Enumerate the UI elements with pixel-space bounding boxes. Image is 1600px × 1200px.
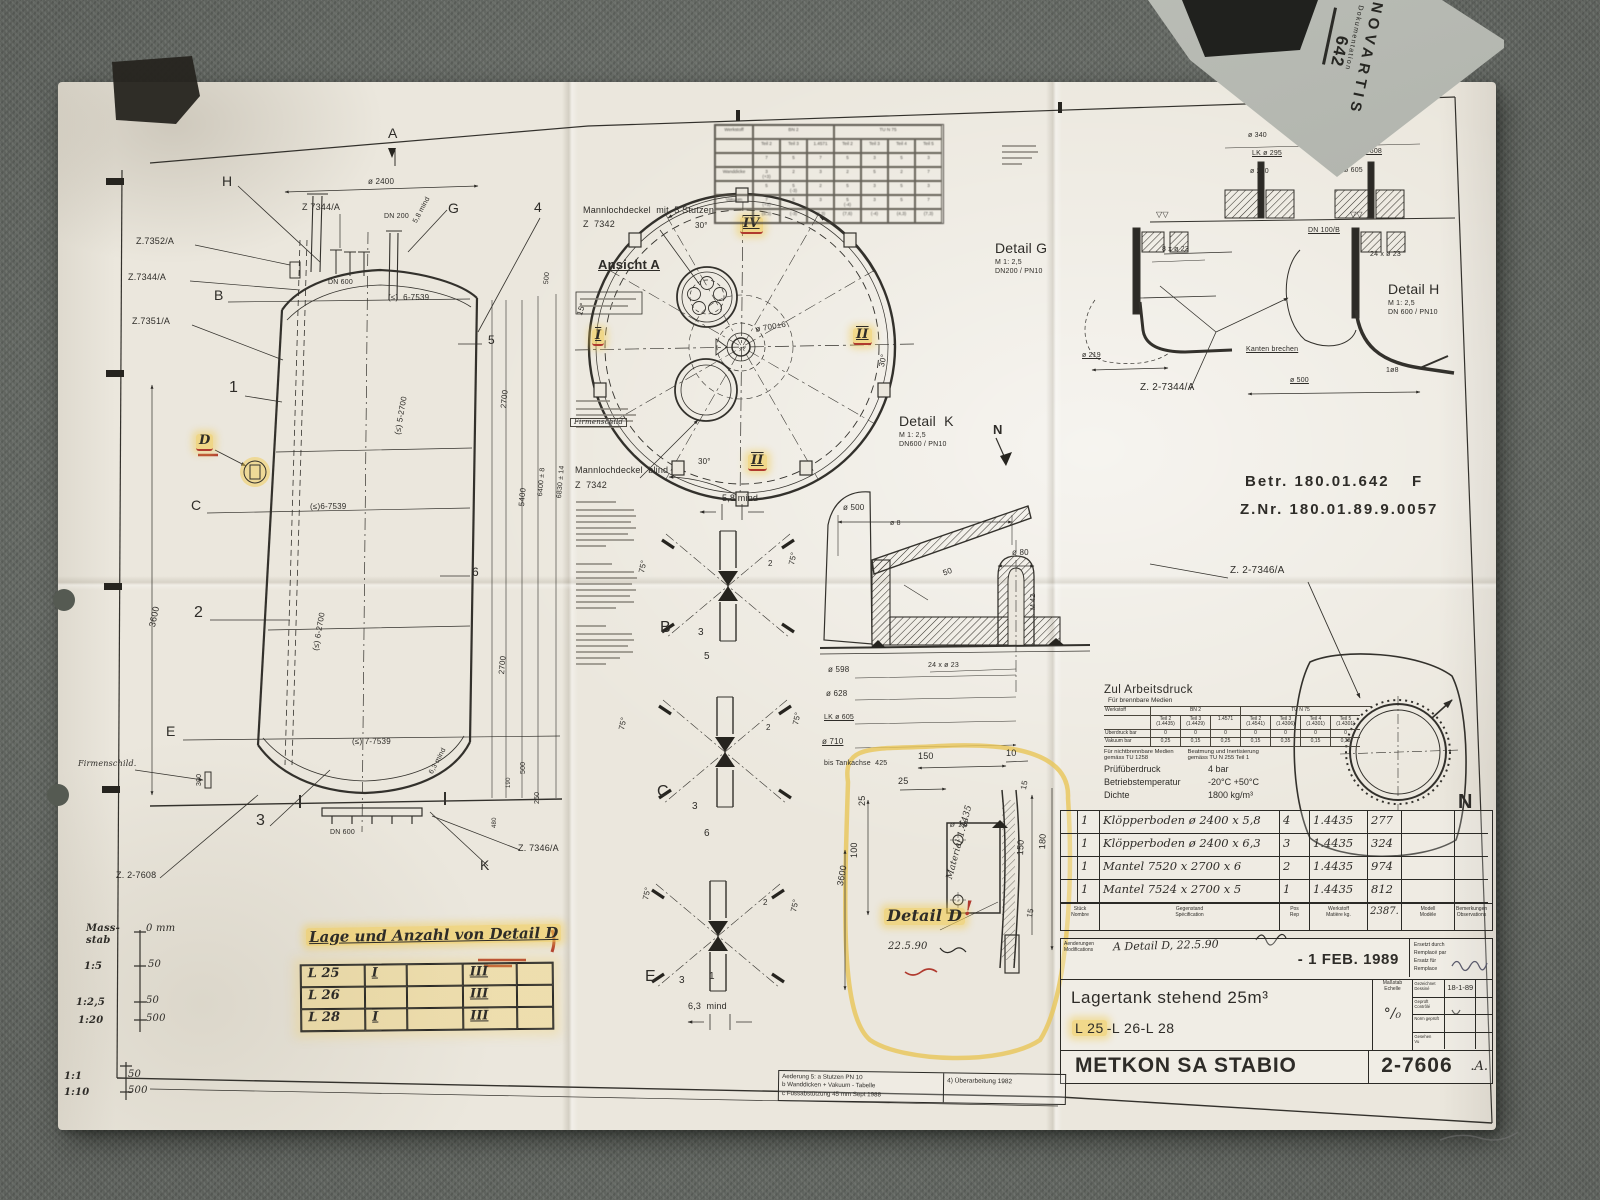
lbl-kanten: Kanten brechen [1246,346,1298,353]
dim-25-d: 25 [898,777,908,786]
dim-80-k: ø 80 [1012,549,1029,557]
item-numbers: L 25-L 26-L 28 [1072,1020,1175,1036]
pos-k: K [480,858,490,873]
parts-row: 1 Klöpperboden ø 2400 x 5,8 4 1.4435 277 [1061,811,1492,834]
lbl-detail-h: Detail H [1388,282,1439,297]
sec-e-3: 3 [679,976,685,986]
sec-b-3: 3 [698,628,704,638]
sec-c: C [657,784,669,801]
scale-cell: MaßstabEchelle °/₀ [1373,980,1414,1050]
dim-710-k: ø 710 [822,738,843,746]
dim-75-e-right: 75° [790,899,801,913]
dim-500-h: ø 500 [1290,377,1309,384]
dim-58mind-mid: 5,8 mind [722,494,758,503]
pos-c: C [191,498,201,513]
lbl-mannloch-blind: Mannlochdeckel blind [575,466,668,475]
pos-e: E [166,724,176,739]
replaced-by-cell: Ersetzt durch Remplacé par Ersatz für Re… [1410,939,1492,979]
drawing-title: Lagertank stehend 25m³ [1071,988,1269,1008]
dim-500-bot: 500 [520,762,527,774]
pos-3: 3 [256,813,265,830]
dim-dn600-top: DN 600 [328,279,353,286]
parts-row: 1 Mantel 7520 x 2700 x 6 2 1.4435 974 [1061,857,1492,880]
ref-z7342-b: Z 7342 [575,481,607,490]
dim-24x23-h: 24 x ø 23 [1370,251,1401,258]
num-ii-right: II [853,328,872,345]
lbl-detail-g: Detail G [995,241,1047,256]
dim-700: ø 700±6 [755,321,787,335]
dim-340: ø 340 [1248,132,1267,139]
dim-75-e-left: 75° [642,887,653,901]
scale-1-20-v: 500 [146,1014,166,1024]
dim-63mind-bottom: 6,3 mind [688,1002,727,1011]
wall-thickness-table: Werkstoff BN 2 TU N 75 Teil 2Teil 31.457… [714,124,944,224]
drawing-title-cell: Lagertank stehend 25m³ L 25-L 26-L 28 [1061,980,1373,1050]
scale-1-5-v: 50 [148,960,161,970]
dim-2-b: 2 [768,560,773,568]
pressure-note-right: Beatmung und Inertisierunggemäss TU N 25… [1188,749,1259,761]
parts-header: StückNombre GegenstandSpécification PosR… [1061,903,1492,930]
scale-value: °/₀ [1373,1006,1413,1022]
num-ii-bottom: II [748,454,767,471]
weld-6-7539-top: (≤) 6-7539 [388,294,429,302]
mark-bang-d: ! [964,898,973,919]
ref-z7351: Z.7351/A [132,317,170,326]
weld-symbol-h: ▽▽ [1350,211,1363,219]
parts-row: 1 Mantel 7524 x 2700 x 5 1 1.4435 812 [1061,880,1492,903]
dim-25v-d: 25 [858,796,867,806]
dim-150v-d: 150 [1016,839,1026,855]
dim-30-top: 30° [695,222,708,230]
betr-line1: Betr. 180.01.642 [1245,474,1390,490]
ref-z2-7608: Z. 2-7608 [116,871,156,880]
dim-250: 250 [534,792,541,804]
dim-250-g: ø 250 [1250,168,1269,175]
dim-190: 190 [506,777,512,788]
dim-dn200: DN 200 [384,213,409,220]
ref-z2-7344: Z. 2-7344/A [1140,383,1194,393]
dim-150-d: 150 [918,752,934,761]
lbl-detail-g-dn: DN200 / PN10 [995,268,1043,275]
pos-1: 1 [229,380,238,397]
modification-entry: A Detail D, 22.5.90 [1113,938,1219,954]
lbl-firmenschild-box: Firmenschild [570,418,627,427]
item-l25-highlight: L 25 [1072,1020,1107,1036]
dim-2700-b: 2700 [498,655,508,674]
pos-2: 2 [194,605,203,622]
dim-6830: 6830 ± 14 [556,465,566,498]
sec-c-3: 3 [692,802,698,812]
lbl-detail-k-dn: DN600 / PN10 [899,441,947,448]
dim-2700-a: 2700 [500,389,510,408]
scale-1-1-v: 50 [128,1070,141,1080]
dim-75-b-right: 75° [788,552,799,566]
dim-m42: M 42 [1030,594,1037,610]
sec-e-1: 1 [709,972,715,982]
pressure-subheading: Für brennbare Medien [1108,697,1372,704]
dim-480: 480 [492,817,498,828]
revision-suffix: .A. [1470,1059,1488,1074]
revision-notes-right: 4) Überarbeitung 1982 [944,1073,1015,1103]
dim-300: 300 [196,774,203,786]
dim-500-k: ø 500 [843,504,864,512]
revision-notes-left: Aederung 5: a Stutzen PN 10 b Wanddicken… [779,1071,944,1102]
dim-15a-d: 15 [1020,780,1030,791]
pos-4: 4 [534,200,542,215]
revision-notes: Aederung 5: a Stutzen PN 10 b Wanddicken… [778,1070,1066,1105]
dim-1o8: 1ø8 [1386,367,1399,374]
pos-h: H [222,174,232,189]
num-i: I [592,329,604,346]
ref-z7352: Z.7352/A [136,237,174,246]
dim-2-c: 2 [766,724,771,732]
dim-6400: 6400 ± 8 [537,467,547,496]
lbl-detail-h-scale: M 1: 2,5 [1388,300,1415,307]
ref-z7344-left: Z.7344/A [128,273,166,282]
company-name: METKON SA STABIO [1075,1054,1297,1078]
weld-6-7539-mid: (≤)6-7539 [310,503,346,511]
dim-219: ø 219 [1082,352,1101,359]
weld-5-2700: (≤) 5-2700 [394,396,409,436]
dim-58mind-top: 5,8 mind [412,196,432,225]
sec-c-6: 6 [704,829,710,839]
pos-n-top: N [993,423,1003,437]
pos-g: G [448,201,459,216]
scale-1-25: 1:2,5 [76,998,105,1008]
lbl-mannloch-5stutzen: Mannlochdeckel mit 5 Stutzen [583,206,714,215]
dim-63mind-left: 6,3 mind [428,747,448,776]
dim-tankachse: bis Tankachse 425 [824,760,887,767]
dim-10-d: 10 [1006,749,1016,758]
betr-line2: Z.Nr. 180.01.89.9.0057 [1240,502,1438,518]
weld-7-7539: (≤) 7-7539 [352,738,391,746]
weld-symbol-g: ▽▽ [1156,211,1169,219]
lbl-detail-k-scale: M 1: 2,5 [899,432,926,439]
dim-5400: 5400 [518,487,528,506]
lbl-date-d: 22.5.90 [888,942,928,952]
dim-2-e: 2 [763,899,768,907]
dim-628: ø 628 [826,690,847,698]
lbl-detail-k: Detail K [899,414,954,429]
dim-598: ø 598 [828,666,849,674]
dim-dn600-bottom: DN 600 [330,829,355,836]
dim-500-top: 500 [543,272,551,285]
dim-24x23-k: 24 x ø 23 [928,662,959,669]
pos-b: B [214,288,224,303]
dim-8-k: ø 8 [890,520,901,527]
lbl-material: Material 1.4435 [946,804,975,880]
working-pressure-block: Zul Arbeitsdruck Für brennbare Medien We… [1104,684,1372,800]
dim-15: 15° [576,302,588,317]
sec-b: B [660,620,671,637]
dim-lk605: LK ø 605 [824,714,854,721]
company-cell: METKON SA STABIO [1061,1051,1369,1083]
dim-3600-d: 3600 [836,864,849,886]
scale-title-2: stab [86,936,111,946]
dim-75-c-right: 75° [792,712,803,726]
drawing-number-cell: 2-7606 .A. [1369,1051,1492,1083]
ref-z7344-top: Z 7344/A [302,203,340,212]
dim-75-c-left: 75° [618,717,629,731]
ref-z7346: Z. 7346/A [518,844,559,853]
pressure-note-left: Für nichtbrennbare Mediengemäss TU 1258 [1104,749,1174,761]
dim-dn100: DN 100/B [1308,227,1340,234]
dim-15b-d: 15 [1026,908,1036,919]
photo-of-technical-drawing: AHZ 7344/AG4ø 2400DN 2005,8 mindZ.7352/A… [0,0,1600,1200]
detail-d-table: L 25IIIIL 26IIIL 28IIII [300,962,555,1033]
dim-2400: ø 2400 [368,178,394,186]
weld-6-2700: (≤) 6-2700 [312,612,327,652]
dim-50-k: 50 [942,567,954,578]
title-block: AenderungenModifications A Detail D, 22.… [1060,938,1493,1084]
pos-d: D [196,434,213,451]
pos-6: 6 [472,566,479,578]
scale-1-10-v: 500 [128,1086,148,1096]
lbl-detail-d: Detail D [884,908,965,925]
modifications-cell: AenderungenModifications A Detail D, 22.… [1061,939,1410,977]
scale-1-5: 1:5 [84,962,102,972]
scale-1-1: 1:1 [64,1072,82,1082]
betr-rev: F [1412,474,1421,490]
scale-title-1: Mass- [86,924,120,934]
pressure-heading: Zul Arbeitsdruck [1104,684,1372,696]
lbl-ansicht-a: Ansicht A [598,258,660,272]
lbl-detail-h-dn: DN 600 / PN10 [1388,309,1438,316]
scale-1-10: 1:10 [64,1088,89,1098]
parts-list-table: 1 Klöpperboden ø 2400 x 5,8 4 1.4435 277… [1060,810,1493,931]
pos-a: A [388,126,398,141]
ref-z7342-a: Z 7342 [583,220,615,229]
lbl-firmenschild-left: Firmenschild. [78,760,137,768]
dim-8x23: 8 x ø 23 [1162,246,1189,253]
sec-e: E [645,969,656,986]
parts-row: 1 Klöpperboden ø 2400 x 6,3 3 1.4435 324 [1061,834,1492,857]
date-stamp: - 1 FEB. 1989 [1298,951,1399,968]
dim-100-d: 100 [850,842,859,858]
dim-75-b-left: 75° [638,560,649,574]
dim-lk295: LK ø 295 [1252,150,1282,157]
sec-b-5: 5 [704,652,710,662]
dim-180-d: 180 [1038,833,1048,849]
dim-30-right: 30° [878,354,889,368]
ref-z2-7346: Z. 2-7346/A [1230,566,1284,576]
dim-3600-left: 3600 [148,606,161,628]
drawing-number: 2-7606 [1381,1054,1452,1078]
dim-30-bottom: 30° [698,458,711,466]
modifications-label: AenderungenModifications [1064,941,1094,953]
scale-0mm: 0 mm [146,924,175,934]
scale-1-25-v: 50 [146,996,159,1006]
signature-grid: GezeichnetDessiné18-1-89 GeprüftContrôlé… [1413,980,1492,1050]
scale-1-20: 1:20 [78,1016,103,1026]
lbl-detail-g-scale: M 1: 2,5 [995,259,1022,266]
pos-5: 5 [488,334,495,346]
